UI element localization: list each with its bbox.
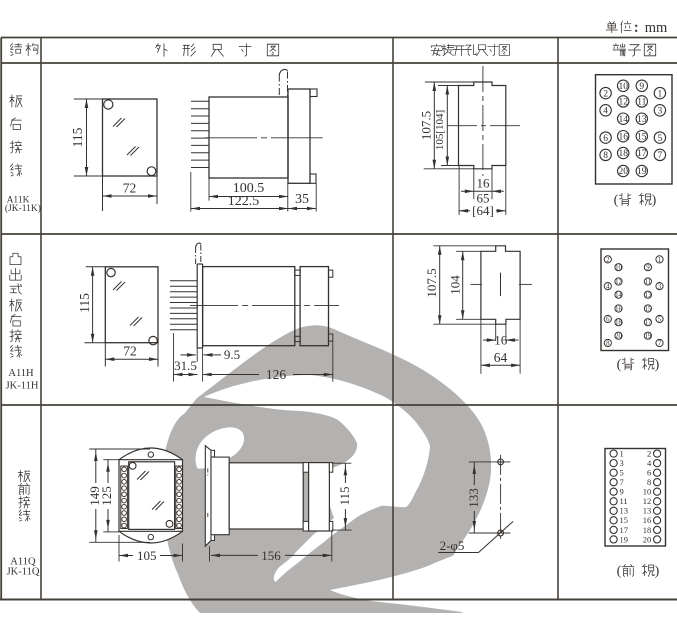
svg-text:13: 13 <box>620 506 629 516</box>
svg-text:4: 4 <box>647 458 652 468</box>
svg-text:16: 16 <box>618 132 628 142</box>
svg-text:14: 14 <box>615 292 622 299</box>
svg-text:72: 72 <box>123 181 137 196</box>
svg-text:16: 16 <box>643 515 652 525</box>
svg-text:): ) <box>655 358 660 373</box>
svg-text:11: 11 <box>620 496 628 506</box>
svg-text:12: 12 <box>618 98 628 108</box>
svg-text:(: ( <box>617 358 622 373</box>
svg-text:13: 13 <box>645 292 652 299</box>
svg-text:JK-11Q: JK-11Q <box>7 567 40 578</box>
svg-text:64: 64 <box>494 350 508 365</box>
svg-text:72: 72 <box>123 344 137 359</box>
svg-text:125: 125 <box>99 486 114 506</box>
svg-text:1: 1 <box>620 449 624 459</box>
svg-text:6: 6 <box>606 316 610 323</box>
svg-text:9: 9 <box>646 265 650 272</box>
svg-text:20: 20 <box>618 167 628 177</box>
svg-text:[64]: [64] <box>472 203 494 218</box>
svg-text:15: 15 <box>645 306 652 313</box>
svg-text:8: 8 <box>603 151 608 161</box>
svg-text:2: 2 <box>603 89 608 99</box>
svg-text:15: 15 <box>637 132 647 142</box>
svg-text:105[104]: 105[104] <box>434 110 446 150</box>
svg-text:107.5: 107.5 <box>424 268 439 297</box>
svg-text:5: 5 <box>620 468 624 478</box>
svg-text:20: 20 <box>643 534 652 544</box>
svg-text:mm: mm <box>645 20 668 36</box>
svg-text:8: 8 <box>606 340 610 347</box>
svg-text:17: 17 <box>645 320 652 327</box>
svg-text:105: 105 <box>137 548 157 563</box>
svg-text:(: ( <box>617 564 622 579</box>
svg-text:16: 16 <box>477 176 491 191</box>
svg-text:): ) <box>652 193 657 208</box>
svg-text:14: 14 <box>618 115 628 125</box>
svg-text:A11H: A11H <box>8 368 34 379</box>
svg-text:17: 17 <box>637 149 647 159</box>
svg-text:31.5: 31.5 <box>174 358 197 373</box>
svg-text:2: 2 <box>647 449 651 459</box>
svg-text:7: 7 <box>620 477 624 487</box>
svg-text:13: 13 <box>643 506 652 516</box>
svg-text:35: 35 <box>295 192 309 207</box>
svg-text:6: 6 <box>647 468 651 478</box>
svg-text:126: 126 <box>266 367 287 382</box>
svg-text:19: 19 <box>620 534 629 544</box>
svg-text:11: 11 <box>637 98 646 108</box>
svg-text:5: 5 <box>658 134 663 144</box>
svg-text:12: 12 <box>615 279 622 286</box>
svg-text:20: 20 <box>615 333 622 340</box>
svg-text:9: 9 <box>620 487 624 497</box>
svg-text:107.5: 107.5 <box>418 111 433 140</box>
svg-text:11: 11 <box>645 279 652 286</box>
svg-text:3: 3 <box>658 107 663 117</box>
svg-text:5: 5 <box>658 316 662 323</box>
svg-text:1: 1 <box>658 89 663 99</box>
svg-text:JK-11H: JK-11H <box>6 381 39 392</box>
svg-text:115: 115 <box>77 293 92 313</box>
svg-text:16: 16 <box>615 306 622 313</box>
svg-text:7: 7 <box>658 151 663 161</box>
svg-text:18: 18 <box>618 149 628 159</box>
svg-text:8: 8 <box>647 477 651 487</box>
svg-text:133: 133 <box>466 488 481 508</box>
svg-text:104: 104 <box>447 275 462 295</box>
svg-text:): ) <box>655 564 660 579</box>
svg-text:3: 3 <box>620 458 624 468</box>
svg-text:156: 156 <box>261 548 281 563</box>
svg-text:19: 19 <box>645 333 652 340</box>
svg-text:115: 115 <box>337 486 352 505</box>
svg-text:16: 16 <box>494 333 508 348</box>
svg-text:4: 4 <box>603 107 608 117</box>
svg-text:9.5: 9.5 <box>224 347 240 362</box>
svg-text:1: 1 <box>658 257 661 264</box>
svg-text:12: 12 <box>643 496 652 506</box>
svg-text:(: ( <box>614 193 619 208</box>
svg-text:19: 19 <box>637 167 647 177</box>
svg-text:9: 9 <box>639 82 644 92</box>
svg-text:17: 17 <box>620 525 629 535</box>
svg-text:10: 10 <box>618 82 628 92</box>
svg-text:13: 13 <box>637 115 647 125</box>
svg-text:6: 6 <box>603 134 608 144</box>
svg-text:10: 10 <box>643 487 652 497</box>
svg-text:18: 18 <box>643 525 652 535</box>
svg-text:2-φ5: 2-φ5 <box>440 538 465 553</box>
svg-text:10: 10 <box>615 265 622 272</box>
svg-text:115: 115 <box>70 127 85 147</box>
svg-text:4: 4 <box>606 284 610 291</box>
svg-text:18: 18 <box>615 320 622 327</box>
svg-text:3: 3 <box>658 284 662 291</box>
svg-text:15: 15 <box>620 515 629 525</box>
svg-text:(JK-11K): (JK-11K) <box>5 203 41 214</box>
svg-text:122.5: 122.5 <box>228 194 260 209</box>
svg-text:2: 2 <box>606 257 610 264</box>
svg-text:7: 7 <box>658 340 662 347</box>
